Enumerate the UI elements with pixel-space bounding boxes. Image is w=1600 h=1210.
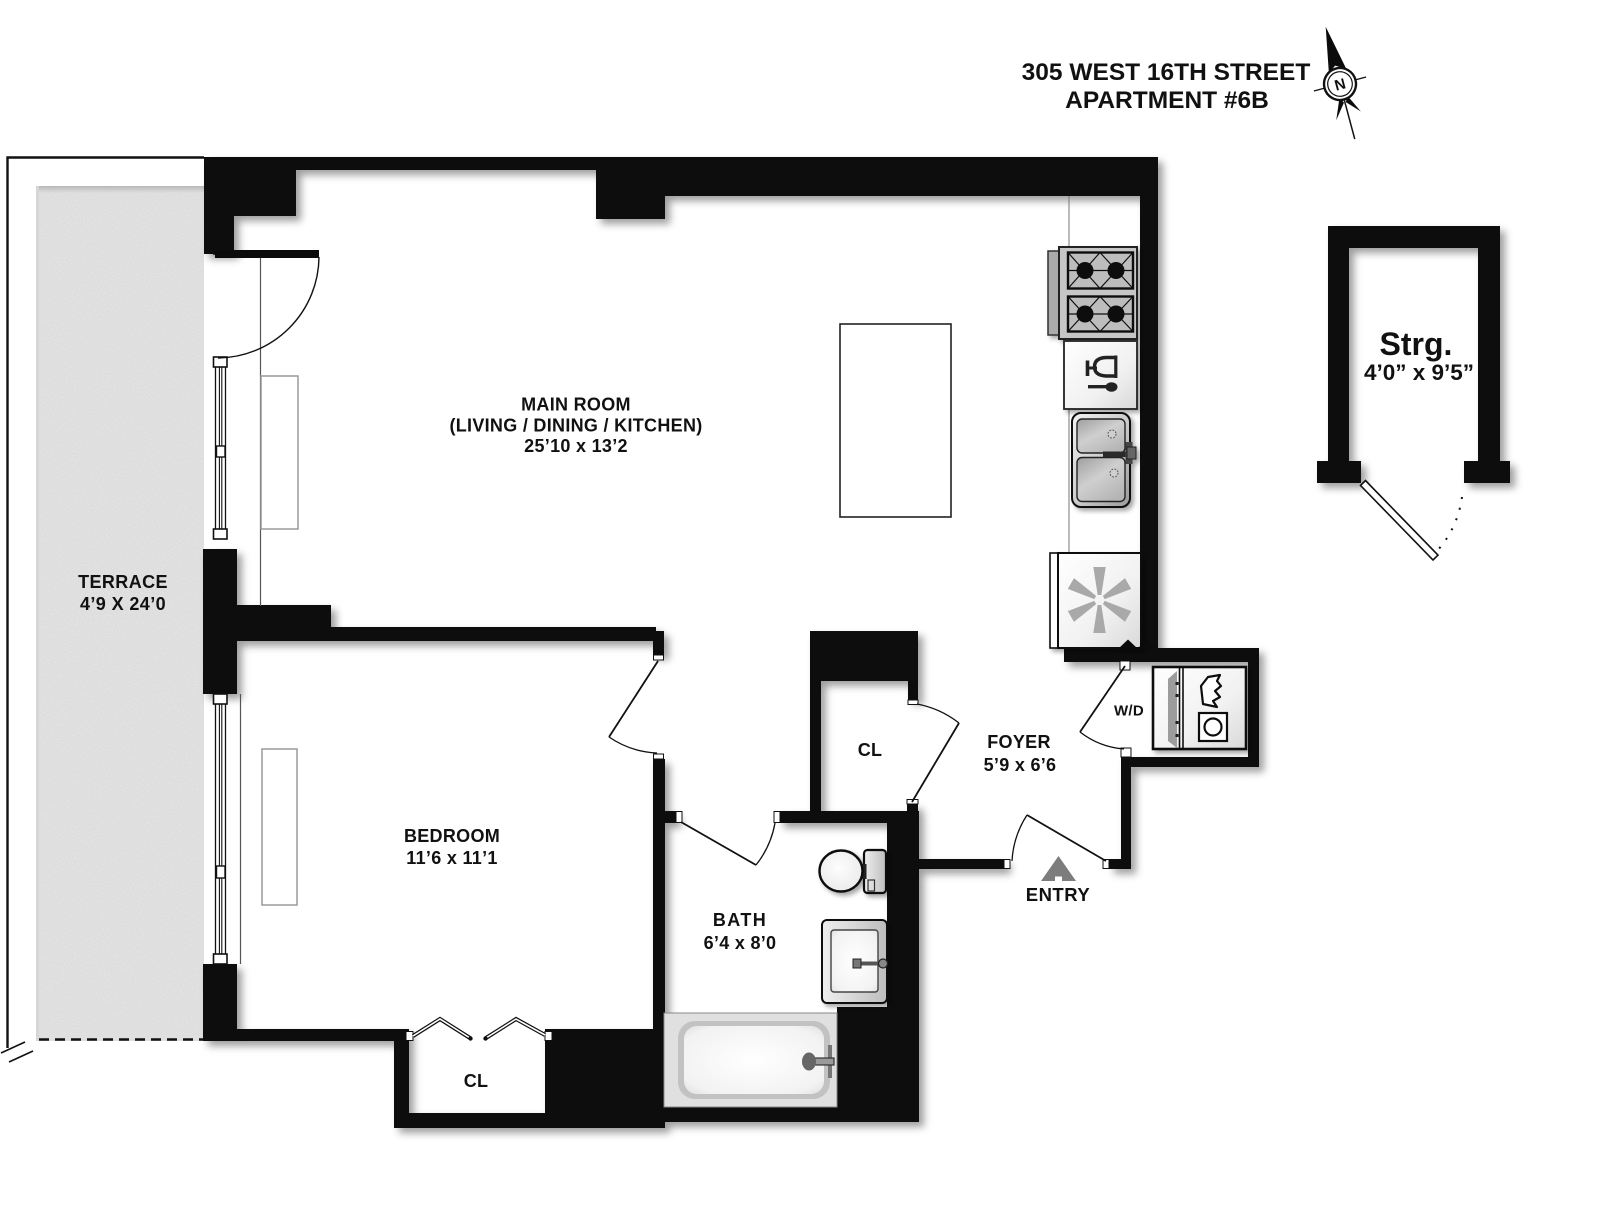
svg-text:4’9 X 24’0: 4’9 X 24’0 — [80, 594, 166, 614]
svg-text:BEDROOM: BEDROOM — [404, 826, 500, 846]
svg-text:ENTRY: ENTRY — [1026, 884, 1091, 905]
svg-text:(LIVING / DINING / KITCHEN): (LIVING / DINING / KITCHEN) — [449, 416, 702, 436]
svg-text:11’6 x 11’1: 11’6 x 11’1 — [406, 848, 497, 868]
svg-text:4’0” x 9’5”: 4’0” x 9’5” — [1364, 360, 1474, 385]
svg-text:5’9 x 6’6: 5’9 x 6’6 — [984, 755, 1057, 775]
svg-text:CL: CL — [464, 1071, 489, 1091]
svg-text:W/D: W/D — [1114, 703, 1144, 720]
svg-text:APARTMENT #6B: APARTMENT #6B — [1065, 87, 1269, 114]
svg-text:6’4 x 8’0: 6’4 x 8’0 — [704, 933, 777, 953]
svg-text:CL: CL — [858, 740, 883, 760]
svg-text:305 WEST 16TH STREET: 305 WEST 16TH STREET — [1022, 59, 1311, 86]
svg-text:BATH: BATH — [713, 910, 767, 930]
svg-text:FOYER: FOYER — [987, 732, 1051, 752]
svg-text:TERRACE: TERRACE — [78, 572, 168, 592]
svg-text:25’10 x 13’2: 25’10 x 13’2 — [524, 436, 628, 456]
svg-text:Strg.: Strg. — [1380, 326, 1453, 362]
svg-text:MAIN ROOM: MAIN ROOM — [521, 395, 631, 415]
